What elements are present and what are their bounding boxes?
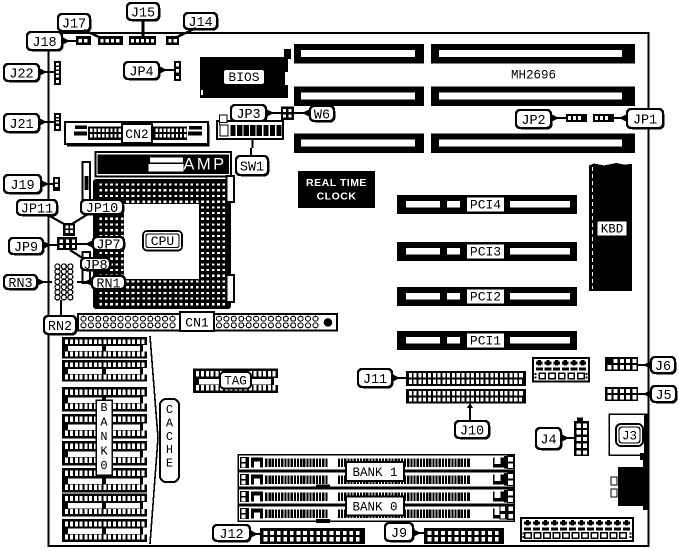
svg-text:H: H (166, 443, 173, 457)
svg-text:J19: J19 (10, 179, 34, 194)
svg-text:PCI1: PCI1 (470, 334, 501, 349)
svg-text:B: B (100, 401, 107, 415)
svg-text:J10: J10 (460, 424, 484, 439)
svg-text:JP8: JP8 (83, 259, 107, 274)
svg-text:0: 0 (100, 459, 107, 473)
svg-text:JP7: JP7 (96, 238, 120, 253)
svg-text:PCI3: PCI3 (470, 245, 501, 260)
svg-text:RN3: RN3 (8, 277, 32, 292)
svg-text:C: C (166, 430, 173, 444)
svg-text:J12: J12 (219, 528, 243, 543)
svg-text:J4: J4 (540, 433, 556, 448)
svg-text:C: C (166, 403, 173, 417)
svg-text:BANK 0: BANK 0 (352, 501, 397, 515)
svg-text:RN2: RN2 (48, 320, 72, 335)
svg-text:PCI2: PCI2 (470, 290, 501, 305)
svg-text:PCI4: PCI4 (470, 198, 501, 213)
svg-text:J3: J3 (622, 430, 637, 444)
svg-text:J11: J11 (363, 373, 387, 388)
svg-text:J17: J17 (62, 17, 86, 32)
svg-text:A: A (100, 416, 108, 430)
svg-text:JP4: JP4 (129, 65, 153, 80)
svg-text:SW1: SW1 (240, 160, 264, 175)
svg-text:W6: W6 (314, 108, 330, 123)
svg-text:JP10: JP10 (86, 202, 118, 217)
svg-text:CLOCK: CLOCK (317, 191, 357, 203)
svg-text:RN1: RN1 (96, 277, 120, 292)
svg-text:BANK 1: BANK 1 (352, 466, 397, 480)
svg-text:J9: J9 (391, 527, 407, 542)
svg-text:KBD: KBD (601, 223, 624, 237)
svg-text:CN2: CN2 (125, 127, 148, 142)
svg-text:JP1: JP1 (633, 113, 657, 128)
svg-text:J21: J21 (9, 118, 33, 133)
svg-text:MH2696: MH2696 (511, 69, 556, 83)
svg-text:BIOS: BIOS (228, 70, 259, 85)
svg-text:JP2: JP2 (521, 114, 545, 129)
svg-text:AMP: AMP (183, 156, 226, 174)
svg-text:J6: J6 (655, 360, 671, 375)
svg-text:REAL TIME: REAL TIME (306, 177, 367, 189)
svg-text:CPU: CPU (151, 234, 174, 249)
svg-text:N: N (100, 430, 107, 444)
svg-text:TAG: TAG (224, 375, 247, 389)
svg-text:E: E (166, 457, 173, 471)
svg-text:JP9: JP9 (14, 241, 38, 256)
svg-text:J5: J5 (655, 389, 671, 404)
svg-text:J22: J22 (9, 67, 33, 82)
svg-text:K: K (100, 445, 108, 459)
svg-text:A: A (166, 416, 174, 430)
svg-text:J18: J18 (32, 36, 56, 51)
svg-text:CN1: CN1 (185, 316, 209, 331)
